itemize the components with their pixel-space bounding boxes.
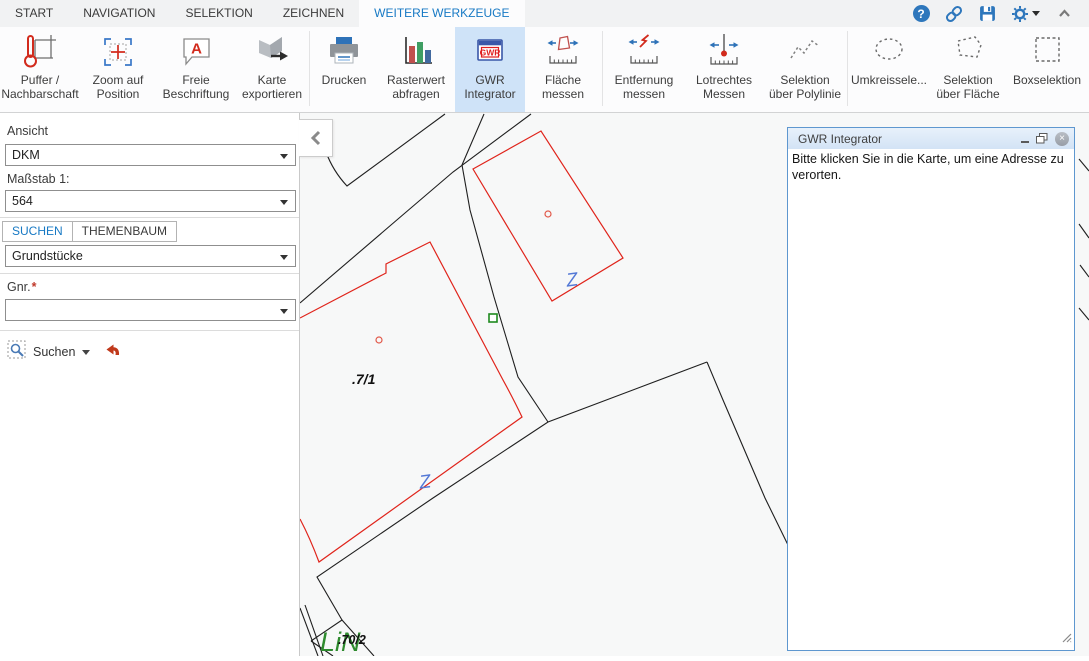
ansicht-label: Ansicht (7, 124, 48, 138)
minimize-icon (1021, 141, 1029, 143)
separator (0, 330, 299, 331)
chevron-down-icon (280, 309, 288, 314)
tab-zeichnen[interactable]: ZEICHNEN (268, 0, 359, 27)
printer-icon (322, 31, 366, 73)
svg-text:GWR: GWR (480, 48, 501, 58)
chevron-down-icon (280, 154, 288, 159)
toolbar-separator (602, 31, 603, 106)
parcel-label-70-2: .70/2 (338, 633, 366, 647)
massstab-label: Maßstab 1: (7, 172, 70, 186)
distance-measure-icon (622, 31, 666, 73)
separator (0, 273, 299, 274)
polygon-select-icon (946, 31, 990, 73)
parcel-label-7-1: .7/1 (352, 371, 376, 387)
close-icon: × (1059, 133, 1065, 144)
gear-caret-icon (1032, 11, 1040, 16)
undo-arrow-icon[interactable] (105, 343, 120, 362)
required-asterisk: * (32, 280, 37, 294)
bar-chart-icon (394, 31, 438, 73)
ribbon-tab-bar: START NAVIGATION SELEKTION ZEICHNEN WEIT… (0, 0, 1089, 27)
sidebar: Ansicht DKM Maßstab 1: 564 SUCHEN THEMEN… (0, 113, 300, 656)
gwr-window-title: GWR Integrator (798, 132, 1021, 146)
restore-icon (1036, 133, 1048, 144)
chevron-left-icon (310, 130, 322, 146)
gwr-window-icon: GWR (468, 31, 512, 73)
close-button[interactable]: × (1055, 132, 1069, 146)
suchen-dropdown-caret[interactable] (82, 350, 90, 355)
flaeche-messen-button[interactable]: Fläche messen (525, 27, 601, 112)
point-marker (376, 337, 382, 343)
layer-select[interactable]: Grundstücke (5, 245, 296, 267)
chevron-down-icon (280, 255, 288, 260)
resize-grip[interactable] (1060, 630, 1072, 648)
gwr-integrator-window: GWR Integrator × Bitte klicken Sie in di… (787, 127, 1075, 651)
tab-selektion[interactable]: SELEKTION (170, 0, 267, 27)
karte-exportieren-button[interactable]: Karte exportieren (236, 27, 308, 112)
separator (0, 217, 299, 218)
map-export-arrow-icon (250, 31, 294, 73)
gnr-input[interactable] (5, 299, 296, 321)
chevron-down-icon (280, 200, 288, 205)
green-square-marker (489, 314, 497, 322)
gwr-integrator-button[interactable]: GWR GWR Integrator (455, 27, 525, 112)
umkreisselektion-button[interactable]: Umkreissele... (849, 27, 929, 112)
boxselektion-button[interactable]: Boxselektion (1007, 27, 1087, 112)
rasterwert-abfragen-button[interactable]: Rasterwert abfragen (377, 27, 455, 112)
resize-grip-icon (1060, 631, 1072, 643)
toolbar-separator (309, 31, 310, 106)
tab-start[interactable]: START (0, 0, 68, 27)
selektion-polylinie-button[interactable]: Selektion über Polylinie (764, 27, 846, 112)
parcel-outlines (300, 131, 623, 562)
zoom-auf-position-button[interactable]: Zoom auf Position (80, 27, 156, 112)
lotrechtes-messen-button[interactable]: Lotrechtes Messen (684, 27, 764, 112)
gwr-window-message: Bitte klicken Sie in die Karte, um eine … (788, 149, 1074, 185)
thermometer-parcel-icon (18, 31, 62, 73)
minimize-button[interactable] (1021, 134, 1029, 143)
ribbon-toolbar: Puffer / Nachbarschaft Zoom auf Position… (0, 27, 1089, 113)
help-icon[interactable]: ? (912, 5, 930, 23)
toolbar-separator (847, 31, 848, 106)
sidebar-collapse-button[interactable] (299, 119, 333, 157)
gear-icon[interactable] (1011, 5, 1040, 23)
selection-magnifier-icon (7, 340, 26, 364)
puffer-nachbarschaft-button[interactable]: Puffer / Nachbarschaft (0, 27, 80, 112)
label-bubble-a-icon: A (174, 31, 218, 73)
parcel-upper-outline (473, 131, 623, 301)
tab-themenbaum[interactable]: THEMENBAUM (72, 221, 177, 242)
crosshair-position-icon (96, 31, 140, 73)
sidebar-tabs: SUCHEN THEMENBAUM (2, 221, 176, 242)
link-icon[interactable] (945, 5, 963, 23)
tab-weitere-werkzeuge[interactable]: WEITERE WERKZEUGE (359, 0, 524, 27)
freie-beschriftung-button[interactable]: A Freie Beschriftung (156, 27, 236, 112)
restore-button[interactable] (1036, 133, 1048, 144)
box-select-icon (1025, 31, 1069, 73)
selektion-flaeche-button[interactable]: Selektion über Fläche (929, 27, 1007, 112)
save-icon[interactable] (978, 5, 996, 23)
tab-suchen[interactable]: SUCHEN (2, 221, 73, 242)
svg-text:A: A (191, 41, 202, 58)
area-measure-icon (541, 31, 585, 73)
fence-symbol: Z (564, 269, 581, 292)
point-marker (545, 211, 551, 217)
ansicht-select[interactable]: DKM (5, 144, 296, 166)
circle-select-icon (867, 31, 911, 73)
gnr-label: Gnr.* (7, 280, 37, 294)
collapse-ribbon-chevron-icon[interactable] (1055, 5, 1073, 23)
gwr-window-titlebar[interactable]: GWR Integrator × (788, 128, 1074, 149)
massstab-select[interactable]: 564 (5, 190, 296, 212)
parcel-7-1-outline (300, 242, 522, 562)
tab-navigation[interactable]: NAVIGATION (68, 0, 170, 27)
suchen-button[interactable]: Suchen (33, 345, 75, 359)
entfernung-messen-button[interactable]: Entfernung messen (604, 27, 684, 112)
drucken-button[interactable]: Drucken (311, 27, 377, 112)
polyline-select-icon (783, 31, 827, 73)
perpendicular-measure-icon (702, 31, 746, 73)
